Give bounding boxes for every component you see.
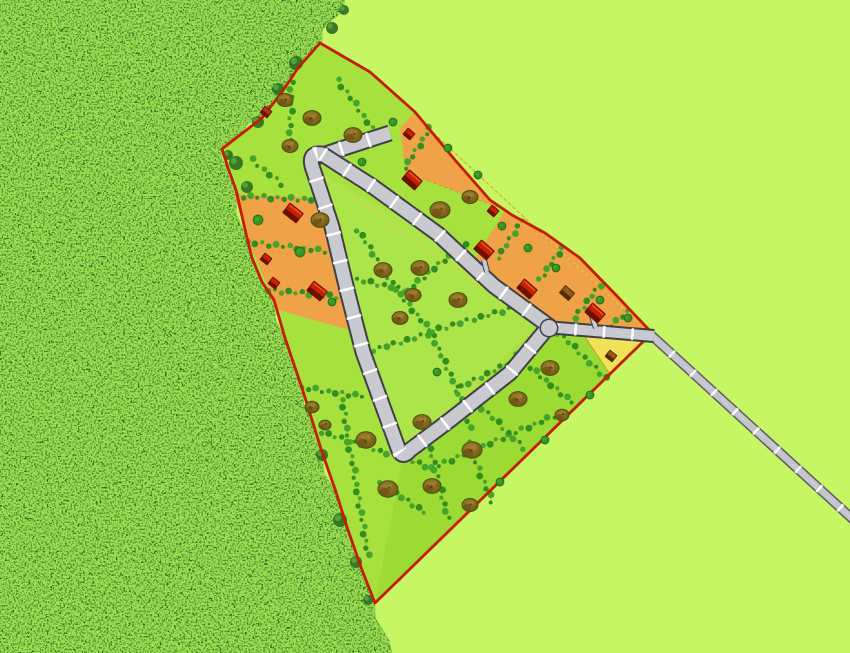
tree-speck <box>398 317 400 319</box>
bush-icon <box>433 368 441 376</box>
hedge-clump <box>514 431 518 435</box>
bush-icon <box>328 298 336 306</box>
bush-highlight <box>329 299 332 302</box>
hedge-clump <box>417 459 422 464</box>
tree-icon <box>462 442 482 458</box>
bush-highlight <box>390 119 393 122</box>
hedge-clump <box>586 360 593 367</box>
hedge-clump <box>369 251 376 258</box>
hedge-clump <box>340 390 344 394</box>
hedge-clump <box>339 434 344 439</box>
hedge-clump <box>583 298 590 305</box>
hedge-clump <box>361 279 366 284</box>
bush-icon <box>596 296 604 304</box>
tree-shade <box>345 134 354 141</box>
hedge-clump <box>543 274 547 278</box>
hedge-clump <box>449 458 456 465</box>
hedge-clump <box>597 372 602 377</box>
bush-icon <box>524 244 532 252</box>
bush-highlight <box>587 392 590 395</box>
hedge-clump <box>312 385 319 392</box>
hedge-clump <box>409 503 414 508</box>
hedge-clump <box>422 464 429 471</box>
hedge-clump <box>262 166 267 171</box>
hedge-clump <box>344 425 351 432</box>
hedge-clump <box>366 551 373 558</box>
hedge-clump <box>507 236 511 240</box>
hedge-clump <box>345 446 352 453</box>
hedge-clump <box>261 193 266 198</box>
hedge-clump <box>544 377 549 382</box>
bush-highlight <box>475 172 478 175</box>
hedge-clump <box>496 418 503 425</box>
hedge-clump <box>472 318 477 323</box>
hedge-clump <box>354 482 359 487</box>
tree-shade <box>463 196 471 202</box>
hedge-clump <box>333 435 337 439</box>
forest-clump-highlight <box>352 558 357 563</box>
hedge-clump <box>492 309 497 314</box>
tree-speck <box>320 218 322 220</box>
bush-highlight <box>359 159 362 162</box>
hedge-clump <box>286 129 293 136</box>
tree-speck <box>309 407 311 409</box>
hedge-clump <box>497 257 501 261</box>
hedge-clump <box>575 309 580 314</box>
tree-icon <box>392 311 408 324</box>
tree-icon <box>411 261 429 276</box>
tree-speck <box>364 440 366 442</box>
hedge-clump <box>442 459 447 464</box>
hedge-clump <box>332 390 339 397</box>
tree-highlight <box>366 435 370 439</box>
hedge-clump <box>361 113 366 118</box>
hedge-clump <box>476 473 483 480</box>
tree-shade <box>306 406 313 412</box>
hedge-clump <box>484 370 491 377</box>
tree-highlight <box>518 394 522 398</box>
hedge-clump <box>416 313 420 317</box>
hedge-clump <box>570 401 574 405</box>
hedge-clump <box>255 164 259 168</box>
hedge-clump <box>326 388 331 393</box>
tree-shade <box>412 267 421 274</box>
site-plan-map[interactable] <box>0 0 850 653</box>
hedge-clump <box>360 531 367 538</box>
forest-clump-highlight <box>274 85 279 90</box>
bush-icon <box>295 247 305 257</box>
hedge-clump <box>281 245 285 249</box>
tree-speck <box>310 117 312 119</box>
hedge-clump <box>497 363 502 368</box>
hedge-clump <box>490 416 495 421</box>
hedge-clump <box>300 289 305 294</box>
hedge-clump <box>363 545 368 550</box>
hedge-clump <box>398 495 405 502</box>
tree-icon <box>462 498 478 511</box>
hedge-clump <box>439 496 443 500</box>
hedge-clump <box>494 437 498 441</box>
hedge-clump <box>582 306 586 310</box>
bush-icon <box>541 436 549 444</box>
hedge-clump <box>556 251 563 258</box>
hedge-clump <box>325 430 332 437</box>
tree-highlight <box>383 265 387 269</box>
tree-shade <box>393 317 401 323</box>
hedge-clump <box>425 132 429 136</box>
hedge-clump <box>288 194 295 201</box>
hedge-clump <box>468 424 475 431</box>
hedge-clump <box>433 460 438 465</box>
hedge-clump <box>345 433 349 437</box>
hedge-clump <box>413 148 417 152</box>
hedge-clump <box>543 265 550 272</box>
tree-shade <box>556 414 563 420</box>
hedge-clump <box>376 257 380 261</box>
forest-clump-highlight <box>231 158 237 164</box>
hedge-clump <box>406 498 410 502</box>
hedge-clump <box>447 516 451 520</box>
tree-shade <box>510 398 519 405</box>
bush-highlight <box>553 265 556 268</box>
hedge-clump <box>457 320 464 327</box>
hedge-clump <box>526 425 533 432</box>
bush-highlight <box>497 479 500 482</box>
hedge-clump <box>437 464 441 468</box>
bush-icon <box>552 264 560 272</box>
hedge-clump <box>282 197 287 202</box>
hedge-clump <box>352 476 356 480</box>
hedge-clump <box>423 321 430 328</box>
hedge-clump <box>436 261 440 265</box>
hedge-clump <box>512 230 519 237</box>
hedge-clump <box>407 301 412 306</box>
tree-speck <box>470 449 472 451</box>
tree-icon <box>413 415 431 430</box>
tree-highlight <box>432 481 436 485</box>
hedge-clump <box>371 448 375 452</box>
hedge-clump <box>352 467 359 474</box>
bush-icon <box>496 478 504 486</box>
tree-speck <box>388 487 390 489</box>
hedge-clump <box>420 136 425 141</box>
hedge-clump <box>464 419 469 424</box>
hedge-clump <box>506 430 511 435</box>
hedge-clump <box>449 378 456 385</box>
hedge-clump <box>465 317 469 321</box>
hedge-clump <box>417 143 424 150</box>
hedge-clump <box>479 376 484 381</box>
hedge-clump <box>288 243 293 248</box>
hedge-clump <box>489 501 493 505</box>
hedge-clump <box>255 196 259 200</box>
junction-surface <box>541 320 557 336</box>
hedge-clump <box>536 276 541 281</box>
hedge-clump <box>404 167 408 171</box>
hedge-clump <box>442 358 449 365</box>
hedge-clump <box>279 290 284 295</box>
tree-speck <box>353 133 355 135</box>
hedge-clump <box>397 285 401 289</box>
bush-highlight <box>297 249 301 253</box>
hedge-clump <box>352 391 359 398</box>
hedge-clump <box>375 284 379 288</box>
hedge-clump <box>519 425 524 430</box>
hedge-clump <box>533 422 537 426</box>
hedge-clump <box>359 232 366 239</box>
hedge-clump <box>436 474 440 478</box>
hedge-clump <box>348 96 353 101</box>
hedge-clump <box>286 86 293 93</box>
hedge-clump <box>576 352 580 356</box>
hedge-clump <box>533 367 540 374</box>
hedge-clump <box>371 125 375 129</box>
bush-highlight <box>525 245 528 248</box>
tree-highlight <box>290 142 294 146</box>
forest-clump-highlight <box>335 515 341 521</box>
hedge-clump <box>378 345 382 349</box>
bush-highlight <box>542 437 545 440</box>
hedge-clump <box>368 244 373 249</box>
tree-shade <box>320 424 326 429</box>
hedge-clump <box>260 240 264 244</box>
hedge-clump <box>293 291 297 295</box>
hedge-clump <box>564 394 571 401</box>
tree-speck <box>515 399 517 401</box>
tree-icon <box>282 139 298 152</box>
hedge-clump <box>418 318 423 323</box>
hedge-clump <box>404 158 411 165</box>
hedge-clump <box>501 437 506 442</box>
tree-icon <box>311 213 329 228</box>
hedge-clump <box>443 259 448 264</box>
hedge-clump <box>442 501 447 506</box>
tree-icon <box>509 392 527 407</box>
hedge-clump <box>552 256 556 260</box>
hedge-clump <box>590 294 595 299</box>
hedge-clump <box>296 199 300 203</box>
bush-highlight <box>499 223 502 226</box>
hedge-clump <box>267 196 274 203</box>
tree-speck <box>430 486 432 488</box>
hedge-clump <box>487 441 494 448</box>
tree-speck <box>550 366 552 368</box>
hedge-clump <box>364 119 371 126</box>
hedge-clump <box>445 327 449 331</box>
hedge-clump <box>388 284 395 291</box>
hedge-clump <box>544 414 551 421</box>
hedge-clump <box>504 243 509 248</box>
hedge-clump <box>414 277 421 284</box>
hedge-clump <box>500 427 504 431</box>
hedge-clump <box>416 504 423 511</box>
tree-speck <box>468 197 470 199</box>
hedge-clump <box>520 447 525 452</box>
tree-highlight <box>312 113 316 117</box>
hedge-clump <box>431 340 438 347</box>
hedge-clump <box>344 439 351 446</box>
hedge-clump <box>499 309 506 316</box>
hedge-clump <box>423 277 427 281</box>
tree-shade <box>380 488 390 496</box>
bush-highlight <box>597 297 600 300</box>
hedge-clump <box>353 488 360 495</box>
hedge-clump <box>594 365 598 369</box>
hedge-clump <box>486 410 490 414</box>
hedge-clump <box>483 480 487 484</box>
hedge-clump <box>404 336 411 343</box>
tree-icon <box>305 401 319 412</box>
hedge-clump <box>319 431 324 436</box>
hedge-clump <box>498 248 505 255</box>
hedge-clump <box>247 192 254 199</box>
hedge-clump <box>465 381 472 388</box>
hedge-clump <box>315 246 322 253</box>
hedge-clump <box>477 313 484 320</box>
tree-icon <box>344 128 362 143</box>
tree-shade <box>432 209 442 217</box>
forest-clump-highlight <box>243 183 248 188</box>
tree-speck <box>470 503 472 505</box>
hedge-clump <box>515 223 520 228</box>
hedge-clump <box>344 412 348 416</box>
hedge-clump <box>455 454 459 458</box>
hedge-clump <box>306 387 311 392</box>
hedge-clump <box>339 404 346 411</box>
hedge-clump <box>354 228 359 233</box>
hedge-clump <box>358 496 362 500</box>
tree-icon <box>430 202 450 218</box>
hedge-clump <box>278 183 283 188</box>
hedge-clump <box>360 395 364 399</box>
hedge-clump <box>351 454 355 458</box>
hedge-clump <box>340 397 345 402</box>
bush-icon <box>624 314 632 322</box>
tree-speck <box>411 295 413 297</box>
hedge-clump <box>450 321 455 326</box>
hedge-clump <box>302 196 307 201</box>
hedge-clump <box>593 288 597 292</box>
tree-speck <box>458 298 460 300</box>
forest-clump-highlight <box>364 596 369 601</box>
hedge-clump <box>437 347 441 351</box>
hedge-clump <box>444 367 448 371</box>
hedge-clump <box>493 369 497 373</box>
hedge-clump <box>266 244 271 249</box>
hedge-clump <box>346 393 351 398</box>
hedge-clump <box>410 460 414 464</box>
hedge-clump <box>472 377 476 381</box>
hedge-clump <box>359 509 366 516</box>
hedge-clump <box>320 390 324 394</box>
map-canvas[interactable] <box>0 0 850 653</box>
tree-speck <box>325 423 327 425</box>
hedge-clump <box>428 464 435 471</box>
hedge-clump <box>486 314 490 318</box>
tree-icon <box>374 263 392 278</box>
tree-speck <box>440 208 442 210</box>
hedge-clump <box>382 282 387 287</box>
tree-icon <box>423 479 441 494</box>
tree-icon <box>303 111 321 126</box>
tree-speck <box>420 266 422 268</box>
hedge-clump <box>356 109 360 113</box>
tree-highlight <box>312 403 315 406</box>
hedge-clump <box>287 116 291 120</box>
tree-shade <box>375 269 384 276</box>
hedge-clump <box>402 299 406 303</box>
tree-shade <box>283 145 291 151</box>
hedge-clump <box>383 451 390 458</box>
bush-icon <box>389 118 397 126</box>
bush-icon <box>358 158 366 166</box>
hedge-clump <box>477 465 482 470</box>
bush-icon <box>474 171 482 179</box>
hedge-clump <box>572 315 579 322</box>
tree-highlight <box>413 291 417 295</box>
hedge-clump <box>527 366 532 371</box>
hedge-clump <box>538 375 542 379</box>
hedge-clump <box>250 155 257 162</box>
forest-clump-highlight <box>328 24 333 29</box>
hedge-clump <box>266 172 273 179</box>
hedge-clump <box>337 84 344 91</box>
bush-highlight <box>625 315 628 318</box>
bush-highlight <box>434 369 437 372</box>
bush-highlight <box>255 217 259 221</box>
hedge-clump <box>342 419 347 424</box>
bush-icon <box>586 391 594 399</box>
hedge-clump <box>412 336 417 341</box>
hedge-clump <box>454 390 458 394</box>
tree-icon <box>277 93 293 106</box>
tree-highlight <box>400 314 404 318</box>
hedge-clump <box>583 354 588 359</box>
tree-icon <box>378 481 398 497</box>
hedge-clump <box>419 332 423 336</box>
hedge-clump <box>555 386 559 390</box>
hedge-clump <box>422 511 426 515</box>
hedge-clump <box>539 420 544 425</box>
tree-icon <box>319 420 331 430</box>
hedge-clump <box>518 440 522 444</box>
hedge-clump <box>410 154 415 159</box>
bush-icon <box>498 222 506 230</box>
hedge-clump <box>288 123 293 128</box>
tree-icon <box>405 288 421 301</box>
hedge-clump <box>613 317 620 324</box>
tree-icon <box>541 361 559 376</box>
hedge-clump <box>572 343 579 350</box>
tree-speck <box>380 270 382 272</box>
hedge-clump <box>364 539 368 543</box>
hedge-clump <box>368 278 375 285</box>
hedge-clump <box>355 503 360 508</box>
hedge-clump <box>378 448 383 453</box>
forest-clump-highlight <box>340 6 345 11</box>
hedge-clump <box>483 486 488 491</box>
tree-speck <box>562 413 564 415</box>
hedge-clump <box>323 251 327 255</box>
hedge-clump <box>442 508 449 515</box>
hedge-clump <box>353 100 360 107</box>
hedge-clump <box>438 353 443 358</box>
hedge-clump <box>384 343 391 350</box>
hedge-clump <box>566 340 571 345</box>
tree-speck <box>285 98 287 100</box>
tree-speck <box>422 420 424 422</box>
hedge-clump <box>252 241 259 248</box>
